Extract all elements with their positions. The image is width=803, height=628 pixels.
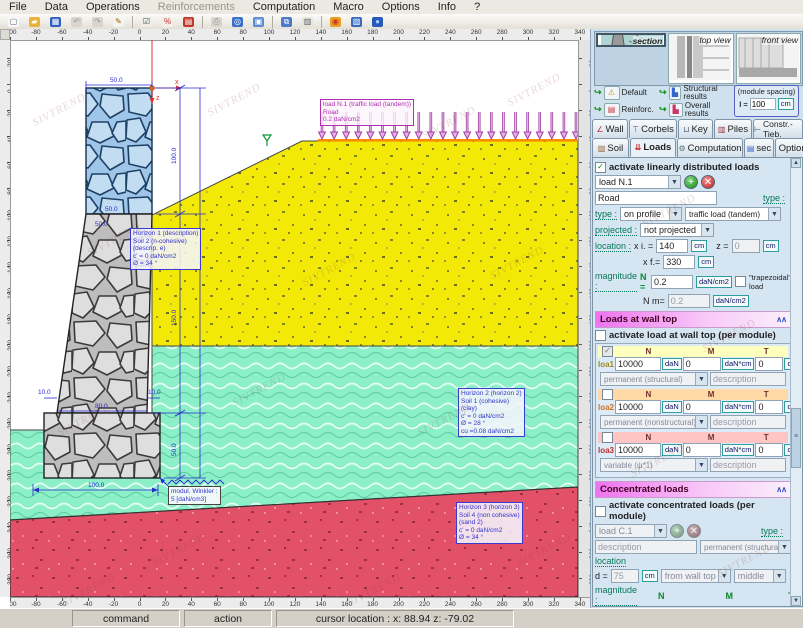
chevron-down-icon: ▼ <box>768 208 780 220</box>
scrollbar-thumb[interactable]: ≡ <box>791 408 801 468</box>
collapse-icon[interactable]: ∧∧ <box>776 315 786 324</box>
location-label: location : <box>595 241 631 252</box>
default-view-button[interactable]: ↪ ⚠ Default <box>594 85 659 100</box>
window-icon[interactable]: ▣ <box>249 14 268 29</box>
panel-icon[interactable]: ▧ <box>347 14 366 29</box>
loa1-checkbox[interactable]: ✓ <box>602 346 613 357</box>
load-row-loa2: N M T loa2 daN daN*cm daN <box>598 389 788 429</box>
type-label: type : <box>595 209 617 220</box>
percent-icon[interactable]: % <box>158 14 177 29</box>
menu-computation[interactable]: Computation <box>244 1 324 13</box>
view-selector: section top view front view <box>594 31 803 86</box>
n-label: N = <box>640 272 648 292</box>
loa3-checkbox[interactable] <box>602 432 613 443</box>
structural-results-button[interactable]: ↪ ▙ Structural results <box>659 85 730 100</box>
xf-unit: cm <box>698 256 714 268</box>
chevron-down-icon: ▼ <box>773 570 785 582</box>
chevron-down-icon: ▼ <box>701 224 713 236</box>
horizon3-annotation: Horizon 3 (horizon 3)Soil 4 (non cohesiv… <box>456 502 523 544</box>
menu-data[interactable]: Data <box>36 1 77 13</box>
view-front[interactable]: front view <box>736 33 801 84</box>
svg-text:150.0: 150.0 <box>171 309 178 326</box>
wall-footing[interactable] <box>44 413 160 478</box>
status-cursor-location: cursor location : x: 88.94 z: -79.02 <box>276 610 514 627</box>
loa2-checkbox[interactable] <box>602 389 613 400</box>
load-name-input[interactable] <box>595 191 717 205</box>
svg-text:50.0: 50.0 <box>110 77 123 84</box>
apply-arrow-icon: ↪ <box>594 87 602 98</box>
loa1-category-select[interactable]: permanent (structural)▼ <box>600 372 708 386</box>
new-file-icon[interactable]: ▢ <box>4 14 23 29</box>
svg-text:80.0: 80.0 <box>95 403 108 410</box>
undo-icon[interactable]: ↶ <box>67 14 86 29</box>
load-annotation: load N.1 (traffic load (tandem)) Road 0.… <box>320 99 414 126</box>
concentrated-description-input[interactable] <box>595 540 697 554</box>
winkler-annotation: modul. Winkler :5 [daN/cm3] <box>168 486 221 505</box>
tab-key[interactable]: ⊔Key <box>678 119 713 138</box>
position-select[interactable]: middle▼ <box>734 569 786 583</box>
toolbar-separator <box>132 16 133 28</box>
status-action: action <box>184 610 272 627</box>
add-load-button[interactable]: + <box>684 175 698 189</box>
svg-text:50.0: 50.0 <box>171 443 178 456</box>
n-input[interactable] <box>651 275 693 289</box>
module-spacing-input[interactable] <box>750 98 776 110</box>
concentrated-type-label: type : <box>761 526 783 537</box>
loa2-m-input[interactable] <box>683 400 721 414</box>
apply-arrow-icon: ↪ <box>659 104 667 115</box>
overall-results-button[interactable]: ↪ ▙ Overall results <box>659 102 730 117</box>
loa1-t-input[interactable] <box>755 357 783 371</box>
concentrated-t-input[interactable] <box>741 606 775 607</box>
toolbar-separator <box>202 16 203 28</box>
verify-icon[interactable]: ☑ <box>137 14 156 29</box>
horizon2-annotation: Horizon 2 (horizon 2)Soil 1 (cohesive) (… <box>458 388 525 437</box>
n-unit: daN/cm2 <box>696 276 732 288</box>
loa1-n-input[interactable] <box>615 357 661 371</box>
module-spacing-label: (module spacing) <box>736 87 797 96</box>
scroll-up-icon[interactable]: ▲ <box>791 158 801 168</box>
chevron-down-icon: ▼ <box>668 176 680 188</box>
concentrated-category-select[interactable]: permanent (structural)▼ <box>700 540 791 554</box>
chevron-down-icon: ▼ <box>669 208 681 220</box>
chart-magnifier-icon: ▙ <box>669 103 683 117</box>
tab-row-structure: ∠Wall ⊤Corbels ⊔Key ▥Piles ⊢Constr.-Tieb… <box>592 119 803 138</box>
loa3-m-input[interactable] <box>683 443 721 457</box>
xi-label: x i. = <box>634 241 653 251</box>
tab-options[interactable]: Options <box>775 138 803 157</box>
trapezoidal-label: "trapezoidal" load <box>749 273 791 291</box>
apply-arrow-icon: ↪ <box>659 87 667 98</box>
load-type-select[interactable]: traffic load (tandem)▼ <box>685 207 781 221</box>
wall-top-loads-header[interactable]: Loads at wall top∧∧ <box>595 311 791 328</box>
tab-sec[interactable]: ▤sec <box>744 138 774 157</box>
profile-type-select[interactable]: on profile▼ <box>620 207 682 221</box>
colors-icon[interactable]: ◉ <box>326 14 345 29</box>
module-spacing-unit: cm <box>778 98 794 110</box>
activate-distributed-label: activate linearly distributed loads <box>609 162 759 173</box>
toolbar: ▢▰▦↶↷✎☑%▤⎙◎▣⧉▥◉▧● <box>0 14 803 30</box>
tab-constr-tieb[interactable]: ⊢Constr.-Tieb. <box>753 119 803 138</box>
menu-options[interactable]: Options <box>373 1 429 13</box>
menu-macro[interactable]: Macro <box>324 1 373 13</box>
type2-label: type : <box>763 193 785 204</box>
xf-input[interactable] <box>663 255 695 269</box>
export-icon[interactable]: ▥ <box>298 14 317 29</box>
view-section[interactable]: section <box>596 33 666 47</box>
d-label: d = <box>595 571 608 581</box>
nm-unit: daN/cm2 <box>713 295 749 307</box>
module-spacing-symbol: l = <box>739 100 748 109</box>
concentrated-location-label: location <box>595 556 626 567</box>
svg-text:10.0: 10.0 <box>148 389 161 396</box>
toolbar-separator <box>272 16 273 28</box>
application-window: File Data Operations Reinforcements Comp… <box>0 0 803 627</box>
d-input[interactable] <box>611 569 639 583</box>
edit-icon[interactable]: ✎ <box>109 14 128 29</box>
menu-reinforcements: Reinforcements <box>149 1 244 13</box>
svg-text:100.0: 100.0 <box>88 482 105 489</box>
tab-piles[interactable]: ▥Piles <box>714 119 752 138</box>
toolbar-separator <box>321 16 322 28</box>
ruler-corner-button[interactable] <box>0 29 10 40</box>
delete-load-button[interactable]: ✕ <box>701 175 715 189</box>
svg-text:50.0: 50.0 <box>95 221 108 228</box>
activate-wall-top-label: activate load at wall top (per module) <box>609 330 776 341</box>
tab-corbels[interactable]: ⊤Corbels <box>629 119 677 138</box>
side-panel: section top view front view <box>590 29 803 608</box>
menu-operations[interactable]: Operations <box>77 1 149 13</box>
redo-icon[interactable]: ↷ <box>88 14 107 29</box>
chevron-down-icon: ▼ <box>695 416 707 428</box>
delete-concentrated-button[interactable]: ✕ <box>687 524 701 538</box>
xi-unit: cm <box>691 240 707 252</box>
settings-icon[interactable]: ◎ <box>228 14 247 29</box>
chart-icon: ▙ <box>669 86 682 100</box>
wall-top-loads-group: ✓ N M T loa1 daN daN*cm daN <box>595 343 791 478</box>
z-unit: cm <box>763 240 779 252</box>
trapezoidal-checkbox[interactable] <box>735 276 746 287</box>
tab-loads[interactable]: ⇊Loads <box>630 138 676 157</box>
concentrated-magnitude-label: magnitude : <box>595 585 637 606</box>
origin-axes: x z <box>150 40 183 104</box>
nm-label: N m= <box>643 296 665 306</box>
loa3-category-select[interactable]: variable (ψ*1)▼ <box>600 458 708 472</box>
chevron-down-icon: ▼ <box>695 459 707 471</box>
save-icon[interactable]: ▦ <box>46 14 65 29</box>
loa2-t-input[interactable] <box>755 400 783 414</box>
panel-scrollbar[interactable]: ▲ ≡ ▼ <box>790 158 802 606</box>
soil-horizon1-yellow[interactable] <box>152 141 578 346</box>
chevron-down-icon: ▼ <box>654 525 666 537</box>
horizon1-annotation: Horizon 1 (description)Soil 2 (n-cohesiv… <box>130 228 201 270</box>
add-concentrated-button[interactable]: + <box>670 524 684 538</box>
xi-input[interactable] <box>656 239 688 253</box>
open-folder-icon[interactable]: ▰ <box>25 14 44 29</box>
book-icon[interactable]: ▤ <box>179 14 198 29</box>
tab-row-data: ▨Soil ⇊Loads ⚙Computation ▤sec Options <box>592 138 803 157</box>
activate-concentrated-checkbox[interactable] <box>595 506 606 517</box>
loa3-description-input[interactable] <box>710 458 786 472</box>
xf-label: x f.= <box>643 257 660 267</box>
loa3-n-input[interactable] <box>615 443 661 457</box>
load-row-loa1: ✓ N M T loa1 daN daN*cm daN <box>598 346 788 386</box>
chevron-down-icon: ▼ <box>778 541 790 553</box>
chevron-down-icon: ▼ <box>718 570 730 582</box>
svg-text:z: z <box>156 95 160 102</box>
tab-computation[interactable]: ⚙Computation <box>677 138 743 157</box>
reference-select[interactable]: from wall top▼ <box>661 569 731 583</box>
d-unit: cm <box>642 570 658 582</box>
scroll-down-icon[interactable]: ▼ <box>791 596 801 606</box>
menu-info[interactable]: Info <box>429 1 465 13</box>
concentrated-load-select[interactable]: load C.1▼ <box>595 524 667 538</box>
loa2-category-select[interactable]: permanent (nonstructural)▼ <box>600 415 708 429</box>
loa2-description-input[interactable] <box>710 415 786 429</box>
wall-upper-masonry[interactable] <box>86 88 152 214</box>
status-command: command <box>72 610 180 627</box>
chevron-down-icon: ▼ <box>695 373 707 385</box>
status-bar: command action cursor location : x: 88.9… <box>0 608 803 628</box>
z-input[interactable] <box>732 239 760 253</box>
view-top[interactable]: top view <box>668 33 733 84</box>
magnitude-label: magnitude : <box>595 271 637 292</box>
warning-magnifier-icon: ⚠ <box>604 86 620 100</box>
load-surface-strip <box>318 139 578 142</box>
ground-level-marker <box>263 135 271 146</box>
loads-tab-content: ✓ activate linearly distributed loads lo… <box>592 157 803 607</box>
menu-bar: File Data Operations Reinforcements Comp… <box>0 0 803 15</box>
activate-concentrated-label: activate concentrated loads (per module) <box>609 500 791 522</box>
svg-text:x: x <box>175 79 179 86</box>
drawing-canvas-area[interactable]: -100-80-60-40-20020406080100120140160180… <box>0 29 590 608</box>
z-label: z = <box>716 241 728 251</box>
loa1-description-input[interactable] <box>710 372 786 386</box>
preview-icon[interactable]: ⎙ <box>207 14 226 29</box>
activate-distributed-checkbox[interactable]: ✓ <box>595 162 606 173</box>
concentrated-loads-header[interactable]: Concentrated loads∧∧ <box>595 481 791 498</box>
projected-select[interactable]: not projected▼ <box>640 223 714 237</box>
loa3-t-input[interactable] <box>755 443 783 457</box>
reinforcement-view-button[interactable]: ↪ ▤ Reinforc. <box>594 102 659 117</box>
concentrated-m-input[interactable] <box>665 606 707 607</box>
concentrated-n-input[interactable] <box>595 606 643 607</box>
svg-text:10.0: 10.0 <box>38 389 51 396</box>
rebar-icon: ▤ <box>604 103 620 117</box>
collapse-icon[interactable]: ∧∧ <box>776 485 786 494</box>
tab-wall[interactable]: ∠Wall <box>592 119 628 138</box>
projected-label: projected : <box>595 225 637 236</box>
load-select[interactable]: load N.1▼ <box>595 175 681 189</box>
tab-soil[interactable]: ▨Soil <box>592 138 629 157</box>
menu-file[interactable]: File <box>0 1 36 13</box>
loa1-m-input[interactable] <box>683 357 721 371</box>
quick-buttons: ↪ ⚠ Default ↪ ▤ Reinforc. ↪ ▙ Structural… <box>594 85 799 117</box>
module-spacing-box: (module spacing) l = cm <box>734 85 799 117</box>
apply-arrow-icon: ↪ <box>594 104 602 115</box>
menu-help[interactable]: ? <box>465 1 489 13</box>
globe-icon[interactable]: ● <box>368 14 387 29</box>
loa2-n-input[interactable] <box>615 400 661 414</box>
load-row-loa3: N M T loa3 daN daN*cm daN <box>598 432 788 472</box>
cascade-windows-icon[interactable]: ⧉ <box>277 14 296 29</box>
activate-wall-top-checkbox[interactable] <box>595 330 606 341</box>
svg-text:50.0: 50.0 <box>105 206 118 213</box>
svg-text:100.0: 100.0 <box>171 147 178 164</box>
nm-input[interactable] <box>668 294 710 308</box>
